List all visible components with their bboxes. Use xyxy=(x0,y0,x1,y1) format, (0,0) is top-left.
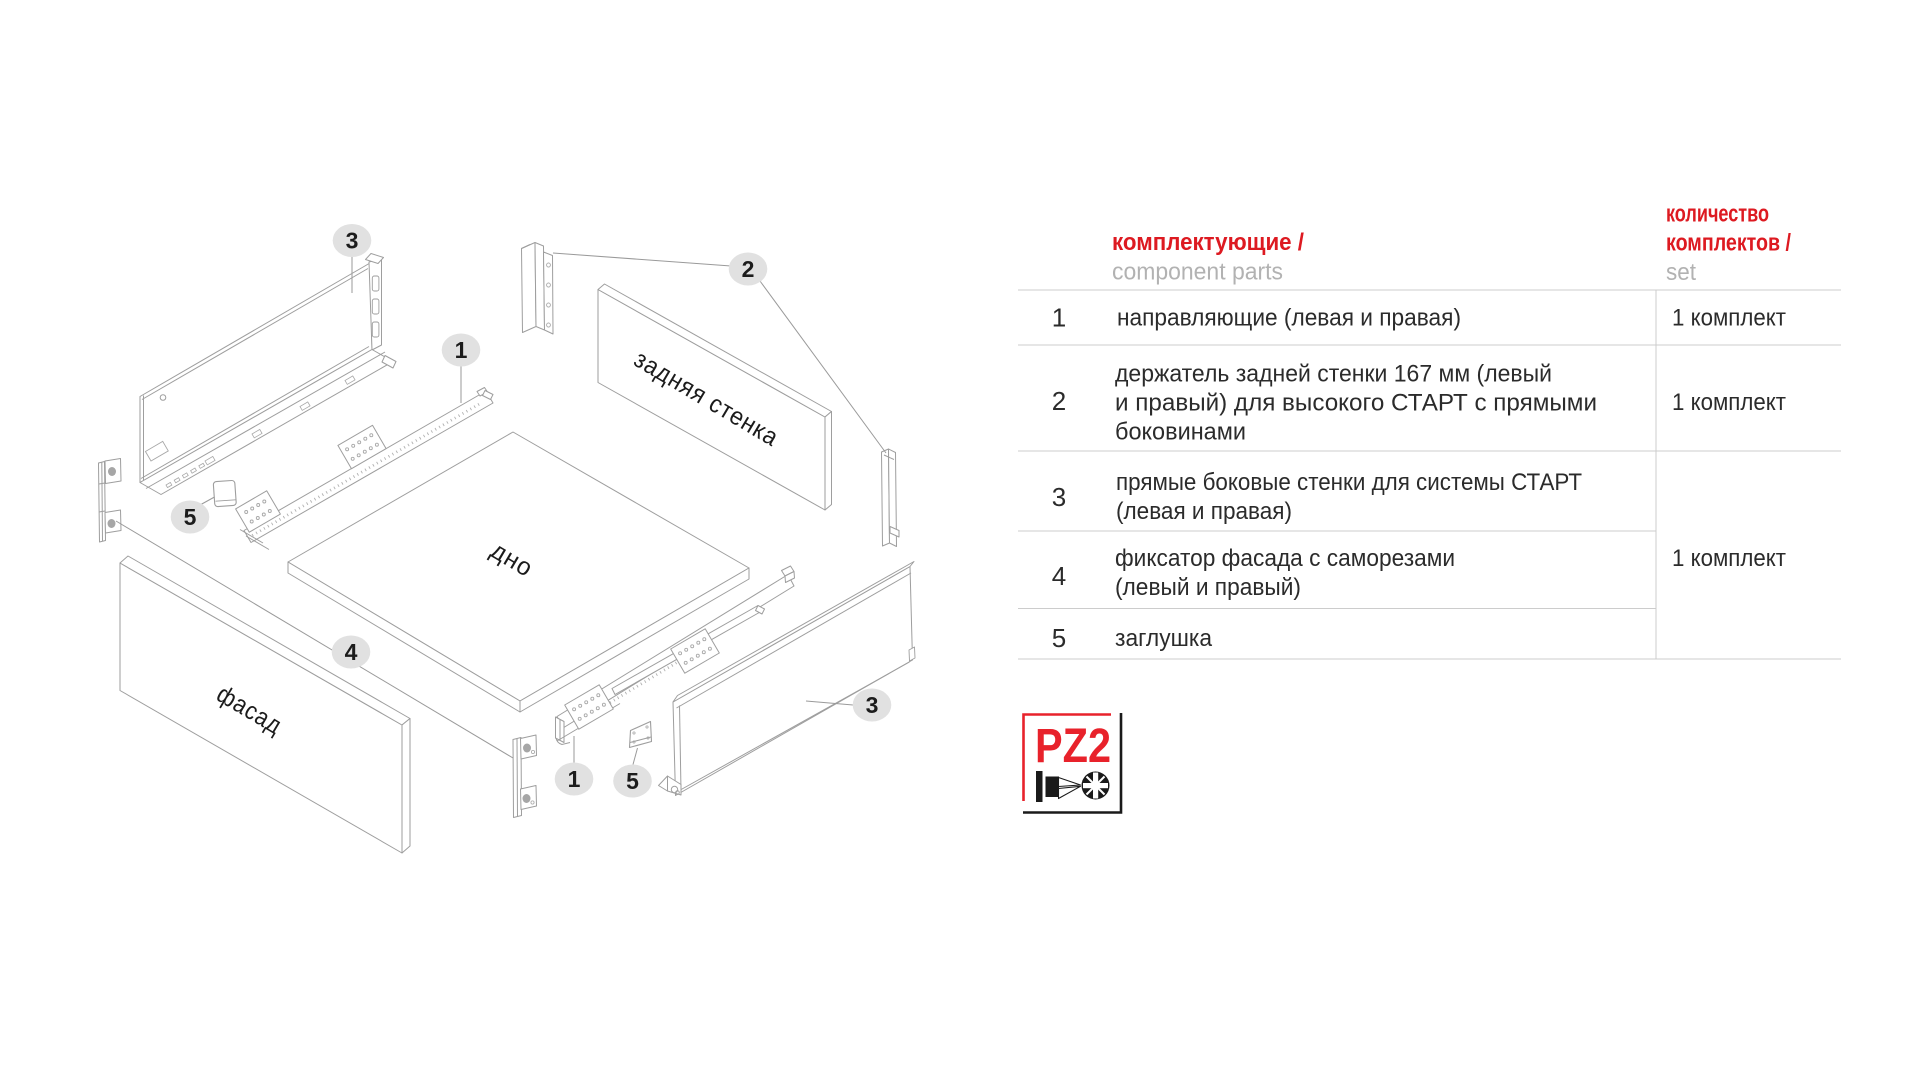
svg-text:комплектов /: комплектов / xyxy=(1666,230,1791,257)
svg-text:держатель задней стенки 167 мм: держатель задней стенки 167 мм (левый xyxy=(1115,361,1552,388)
svg-text:2: 2 xyxy=(1052,386,1066,416)
svg-text:3: 3 xyxy=(1052,482,1066,512)
svg-text:1 комплект: 1 комплект xyxy=(1672,389,1786,416)
svg-text:component parts: component parts xyxy=(1112,259,1283,286)
svg-text:5: 5 xyxy=(1052,623,1066,653)
svg-text:4: 4 xyxy=(345,639,358,665)
svg-text:3: 3 xyxy=(346,228,359,254)
svg-text:1 комплект: 1 комплект xyxy=(1672,545,1786,572)
svg-text:(левая и правая): (левая и правая) xyxy=(1116,498,1292,525)
svg-text:2: 2 xyxy=(742,256,755,282)
svg-text:количество: количество xyxy=(1666,201,1769,228)
svg-text:1 комплект: 1 комплект xyxy=(1672,305,1786,332)
svg-text:прямые боковые стенки для сист: прямые боковые стенки для системы СТАРТ xyxy=(1116,469,1582,496)
svg-text:4: 4 xyxy=(1052,561,1066,591)
svg-text:3: 3 xyxy=(866,692,879,718)
svg-text:PZ2: PZ2 xyxy=(1035,720,1111,773)
svg-text:5: 5 xyxy=(184,504,197,530)
svg-text:боковинами: боковинами xyxy=(1115,419,1246,446)
svg-text:направляющие (левая и правая): направляющие (левая и правая) xyxy=(1117,305,1461,332)
svg-text:заглушка: заглушка xyxy=(1115,625,1213,652)
svg-text:1: 1 xyxy=(568,766,581,792)
svg-text:set: set xyxy=(1666,259,1696,286)
svg-text:1: 1 xyxy=(1052,303,1066,333)
svg-text:и правый) для высокого СТАРТ с: и правый) для высокого СТАРТ с прямыми xyxy=(1115,390,1597,417)
svg-text:5: 5 xyxy=(626,768,639,794)
svg-text:(левый и правый): (левый и правый) xyxy=(1115,574,1301,601)
svg-text:фиксатор фасада с саморезами: фиксатор фасада с саморезами xyxy=(1115,545,1455,572)
svg-text:1: 1 xyxy=(455,337,468,363)
svg-text:комплектующие /: комплектующие / xyxy=(1112,229,1304,256)
